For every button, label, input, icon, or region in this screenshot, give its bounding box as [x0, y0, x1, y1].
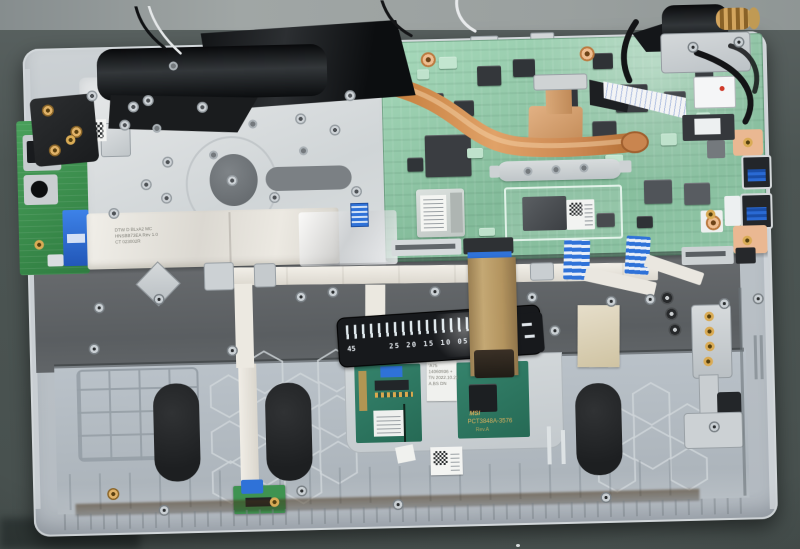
antenna-wire-white-mid [456, 0, 475, 32]
touchpad-left-blue-connector [380, 366, 402, 378]
palmrest-clip [530, 262, 554, 281]
heatsink-flange [533, 73, 587, 90]
display-cable-connector [693, 76, 736, 109]
right-hinge-screw-thread [716, 7, 753, 30]
wifi-shield-edge [450, 192, 463, 232]
usb-tongue-1 [748, 169, 766, 181]
lvds-socket-label [694, 118, 720, 135]
service-sticker: 'A75 14060936 + TN 2022.10.21 A.BS DN [426, 361, 456, 401]
bracket-column [691, 304, 733, 379]
touchpad-rev-text: Rev.A [476, 426, 524, 433]
usb-tongue-2 [746, 207, 766, 220]
wifi-sticker-lines [423, 198, 444, 228]
battery-led-cable [238, 364, 259, 488]
bracket-lower [683, 412, 744, 449]
qr-sticker-bay-code [433, 451, 447, 465]
white-pad [701, 210, 724, 233]
plate-ffc-connector [350, 203, 369, 227]
m2-black-latch [735, 247, 755, 263]
touchpad-left-socket [375, 380, 409, 391]
touchpad-left-sticker-lines [376, 413, 400, 434]
laptop-chassis: DTW D BLxA2 MC HNSBB73EA Rev 1.0 CT 0230… [0, 0, 800, 549]
wide-ffc-marking: DTW D BLxA2 MC HNSBB73EA Rev 1.0 CT 0230… [115, 224, 194, 245]
cpu-sticker-lines [584, 203, 593, 225]
right-hinge-screw-cap [748, 7, 761, 29]
touchpad-left-gold-pins [375, 392, 413, 398]
dust-speck [516, 544, 520, 547]
mylar-shield [298, 210, 397, 266]
left-hinge-barrel [96, 44, 327, 102]
port-chip [707, 140, 725, 158]
palmrest-clip [254, 263, 277, 288]
m2-slot-gap [686, 251, 726, 257]
heatsink-retention-bracket [497, 159, 621, 182]
cpu-qr-code [569, 203, 582, 216]
rib-pin [561, 430, 566, 464]
bracket-wing [619, 160, 631, 172]
copper-tape-strip [358, 371, 367, 411]
white-ffc-left-branch [234, 284, 254, 368]
qr-sticker-bay-lines [450, 451, 459, 471]
copper-pad-top [733, 129, 764, 156]
io-board-component [47, 254, 63, 266]
antenna-wire-black-left [135, 4, 164, 49]
battery-led-connector [241, 479, 263, 494]
port-white-box [724, 196, 741, 226]
tan-label [578, 305, 620, 367]
ruler-flex-right-end [514, 312, 545, 354]
right-hinge-bracket [660, 31, 751, 73]
bracket-wing [489, 166, 499, 178]
ruler-left-mark: 45 [347, 345, 356, 354]
flex-end-mark [522, 323, 532, 327]
plate-dark-strip [265, 165, 352, 191]
flex-end-mark [525, 334, 535, 338]
speaker-pad [153, 383, 201, 482]
palmrest-clip [204, 262, 235, 291]
speaker-pad [575, 383, 623, 476]
service-sticker-line4: A.BS DN [429, 381, 457, 387]
speaker-pad [265, 382, 313, 481]
display-connector-red-dot [720, 86, 725, 91]
touchpad-controller-chip [469, 384, 498, 413]
left-hinge-bracket [29, 93, 99, 167]
photo-canvas: DTW D BLxA2 MC HNSBB73EA Rev 1.0 CT 0230… [0, 0, 800, 549]
io-ffc-label [67, 234, 85, 243]
kapton-ribbon-tip [474, 349, 515, 378]
cpu-die [522, 196, 567, 231]
